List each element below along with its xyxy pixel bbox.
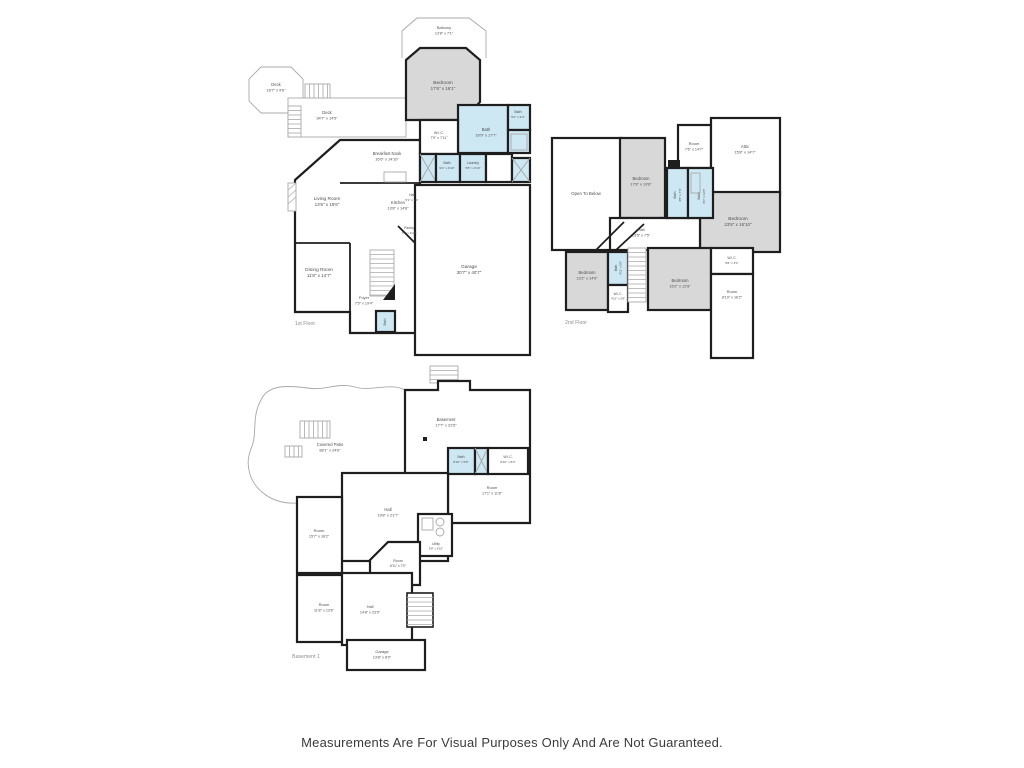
room-label-open-to-below: Open To Below: [571, 191, 602, 196]
room-dims: 3'8" x 7'6": [678, 188, 682, 202]
room-name: Breakfast Nook: [373, 151, 403, 156]
room-name: Bedroom: [728, 216, 747, 222]
room-name: Room: [319, 602, 330, 607]
room-name: Open To Below: [571, 191, 602, 196]
room-dims: 14'8" x 23'0": [360, 610, 381, 614]
room-name: Bath: [515, 110, 522, 114]
room-dims: 15'7" x 18'2": [309, 534, 330, 538]
room-name: Bath: [673, 191, 677, 198]
patio-side-stairs: [285, 446, 302, 457]
room-name: Attic: [741, 144, 749, 149]
room-name: Room: [689, 141, 700, 146]
room-label-living-room: Living Room13'6" x 19'6": [314, 196, 341, 207]
hall-bottom: [342, 573, 412, 645]
room-name: Room: [393, 559, 403, 563]
mud-hall: [486, 154, 512, 182]
floor-label: 2nd Floor: [565, 320, 587, 326]
room-name: Bath: [383, 318, 387, 325]
room-right: [711, 274, 753, 358]
room-dims: 19'8" x 21'7": [377, 513, 399, 518]
room-name: W.I.C.: [727, 256, 736, 260]
room-name: Bath: [444, 161, 451, 165]
room-dims: 8'10" x 5'8": [453, 460, 468, 464]
room-name: Utility: [432, 542, 440, 546]
room-dims: 30'7" x 40'7": [457, 270, 482, 275]
room-name: Bedroom: [433, 80, 452, 86]
room-name: Bath: [697, 192, 701, 199]
room-name: Room: [314, 528, 325, 533]
room-dims: 17'7" x 22'6": [435, 423, 457, 428]
room-name: Bedroom: [633, 176, 651, 181]
room-dims: 15'2" x 12'8": [669, 284, 691, 289]
wall-mass: [668, 160, 680, 169]
floor-second: Open To BelowBedroom17'8" x 19'6"Room7'6…: [552, 118, 780, 358]
room-dims: 17'1" x 11'8": [482, 491, 503, 495]
room-dims: 9'1" x 4'10": [439, 166, 454, 170]
room-label-laundry: Laundry5'8" x 4'10": [465, 161, 480, 170]
room-label-balcony: Balcony13'8" x 7'1": [435, 25, 454, 35]
floor-plan-canvas: Balcony13'8" x 7'1"Bedroom17'6" x 16'1"D…: [0, 0, 1024, 768]
room-label-covered-patio: Covered Patio88'1" x 24'6": [317, 442, 344, 453]
room-dims: 23'8" x 15'10": [724, 222, 752, 227]
room-dims: 7'5" x 19'4": [355, 301, 374, 305]
room-name: Kitchen: [391, 200, 406, 205]
room-name: Bath: [458, 455, 465, 459]
room-dims: 5'2" x 9'4": [511, 115, 525, 119]
room-name: Hall: [409, 193, 415, 197]
room-name: W.I.C.: [614, 292, 623, 296]
room-dims: 8'8" x 3'1": [725, 261, 739, 265]
room-dims: 16'6" x 14'10": [375, 157, 399, 162]
room-dims: 8'10" x 5'0": [500, 460, 515, 464]
room-dims: 17'6" x 16'1": [431, 86, 456, 91]
room-dims: 7'6" x 14'7": [685, 147, 704, 151]
room-dims: 13'8" x 14'8": [387, 206, 409, 211]
room-dims: 5'1" x 9'1": [405, 198, 419, 202]
room-name: Dining Room: [305, 267, 333, 273]
fireplace: [288, 183, 296, 211]
disclaimer-text: Measurements Are For Visual Purposes Onl…: [0, 735, 1024, 750]
room-dims: 8'10" x 16'2": [722, 295, 743, 299]
room-name: Deck: [271, 82, 281, 87]
floor-label: Basement 1: [292, 654, 320, 660]
room-dims: 5'8" x 5'10": [429, 547, 443, 551]
room-dims: 11'8" x 14'7": [307, 273, 332, 278]
room-dims: 13'8" x 7'1": [435, 31, 454, 35]
deck-stairs: [305, 84, 330, 98]
room-dims: 15'8" x 14'7": [734, 150, 756, 155]
room-dims: 34'7" x 14'5": [316, 116, 338, 121]
room-label-basement: Basement17'7" x 22'6": [435, 417, 457, 428]
room-dims: 13'5" x 7'5": [632, 233, 651, 237]
room-name: Laundry: [467, 161, 480, 165]
kitchen-island: [384, 172, 406, 182]
room-name: Balcony: [437, 25, 451, 30]
floor-first: Balcony13'8" x 7'1"Bedroom17'6" x 16'1"D…: [249, 18, 530, 355]
room-name: Hall: [384, 507, 391, 512]
room-dims: 13'2" x 14'6": [576, 276, 598, 281]
room-label-bedroom: Bedroom17'8" x 19'6": [630, 176, 652, 187]
room-name: Room: [487, 485, 498, 490]
room-dims: 4'11" x 9'8": [619, 261, 623, 275]
room-dims: 7'1" x 4'10": [401, 231, 416, 235]
room-dims: 5'8" x 4'10": [465, 166, 480, 170]
room-label-bedroom: Bedroom13'2" x 14'6": [576, 270, 598, 281]
room-name: W.I.C.: [503, 455, 512, 459]
room-name: W.I.C.: [434, 131, 444, 135]
floor-label: 1st Floor: [295, 321, 315, 327]
room-label-breakfast-nook: Breakfast Nook16'6" x 14'10": [373, 151, 403, 162]
room-dims: 16'9" x 17'7": [475, 133, 497, 138]
room-label-bedroom: Bedroom15'2" x 12'8": [669, 278, 691, 289]
room-name: Deck: [322, 110, 332, 115]
room-name: Garage: [375, 649, 389, 654]
room-dims: 16'7" x 9'6": [266, 88, 286, 93]
room-label-dining-room: Dining Room11'8" x 14'7": [305, 267, 333, 278]
room-name: Pantry: [404, 226, 414, 230]
deck-outline: [288, 98, 406, 137]
room-dims: 11'8" x 13'6": [314, 608, 335, 612]
room-name: Room: [727, 289, 738, 294]
room-label-bath: Bath: [383, 318, 387, 325]
room-dims: 13'6" x 19'6": [315, 202, 340, 207]
room-name: Bath: [614, 264, 618, 271]
room-dims: 8'0" x 11'8": [702, 188, 706, 203]
basement-stairs: [407, 593, 433, 627]
room-label-bedroom: Bedroom17'6" x 16'1": [431, 80, 456, 91]
room-name: Bedroom: [579, 270, 597, 275]
room-dims: 8'11" x 7'0": [390, 564, 407, 568]
room-name: Foyer: [359, 295, 370, 300]
room-name: Hall: [367, 604, 374, 609]
room-dims: 13'8" x 8'0": [373, 655, 392, 659]
room-dims: 4'11" x 5'8": [611, 297, 625, 301]
attic-room: [711, 118, 780, 195]
room-name: Hall: [638, 227, 645, 232]
floor-basement: Covered Patio88'1" x 24'6"Basement17'7" …: [248, 366, 530, 670]
support-column: [423, 437, 427, 441]
room-dims: 88'1" x 24'6": [319, 448, 341, 453]
room-name: Bedroom: [672, 278, 690, 283]
room-name: Covered Patio: [317, 442, 344, 447]
floorplan-sheet: Balcony13'8" x 7'1"Bedroom17'6" x 16'1"D…: [0, 0, 1024, 768]
bedroom-bl-room: [566, 252, 608, 310]
room-name: Garage: [461, 264, 477, 270]
room-name: Bath: [482, 127, 491, 132]
room-dims: 17'8" x 19'6": [630, 182, 652, 187]
room-dims: 7'5" x 7'11": [431, 136, 449, 140]
room-name: Basement: [437, 417, 457, 422]
foyer-stairs: [370, 250, 394, 296]
room-name: Living Room: [314, 196, 341, 202]
